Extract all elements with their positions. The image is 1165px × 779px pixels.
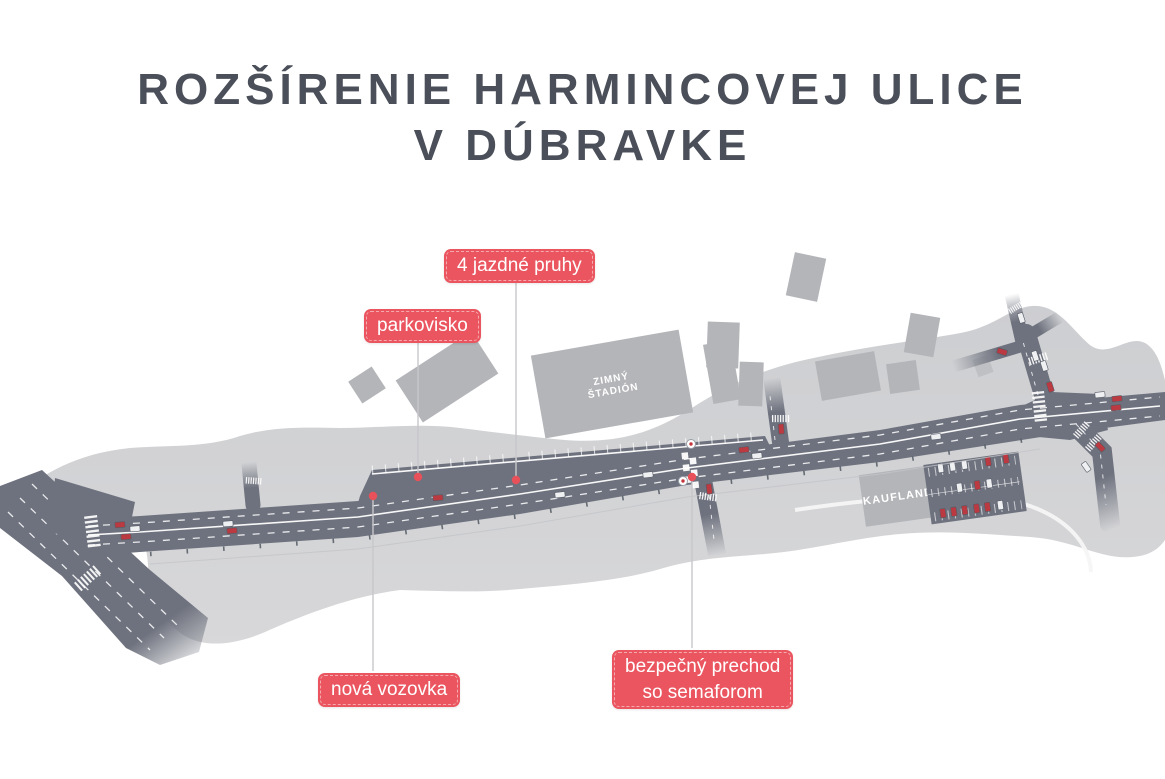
small-building (348, 366, 386, 403)
building (886, 360, 920, 394)
pointer-dot-new-road (369, 492, 377, 500)
callout-new-road-badge: nová vozovka (318, 673, 460, 707)
pointer-dot-parking (414, 473, 422, 481)
map-illustration: ZIMNÝ ŠTADIÓN KAUFLAND (0, 0, 1165, 779)
stadium-annex-building (396, 332, 499, 423)
building (738, 362, 764, 407)
side-street-fading (249, 464, 253, 505)
callout-crossing-badge: bezpečný prechod so semaforom (612, 650, 793, 709)
callout-crossing-line2: so semaforom (625, 680, 780, 706)
crosswalk (53, 589, 75, 610)
side-street-fading (772, 380, 781, 446)
pointer-dot-lanes (512, 476, 520, 484)
building (786, 252, 826, 302)
building (706, 321, 740, 368)
callout-lanes-badge: 4 jazdné pruhy (444, 249, 595, 283)
pointer-dot-crossing (688, 473, 696, 481)
traffic-light-icon (687, 440, 696, 449)
callout-parking-badge: parkovisko (364, 309, 481, 343)
crosswalk (30, 603, 48, 620)
traffic-light-icon (679, 477, 688, 486)
callout-crossing-line1: bezpečný prechod (625, 654, 780, 680)
